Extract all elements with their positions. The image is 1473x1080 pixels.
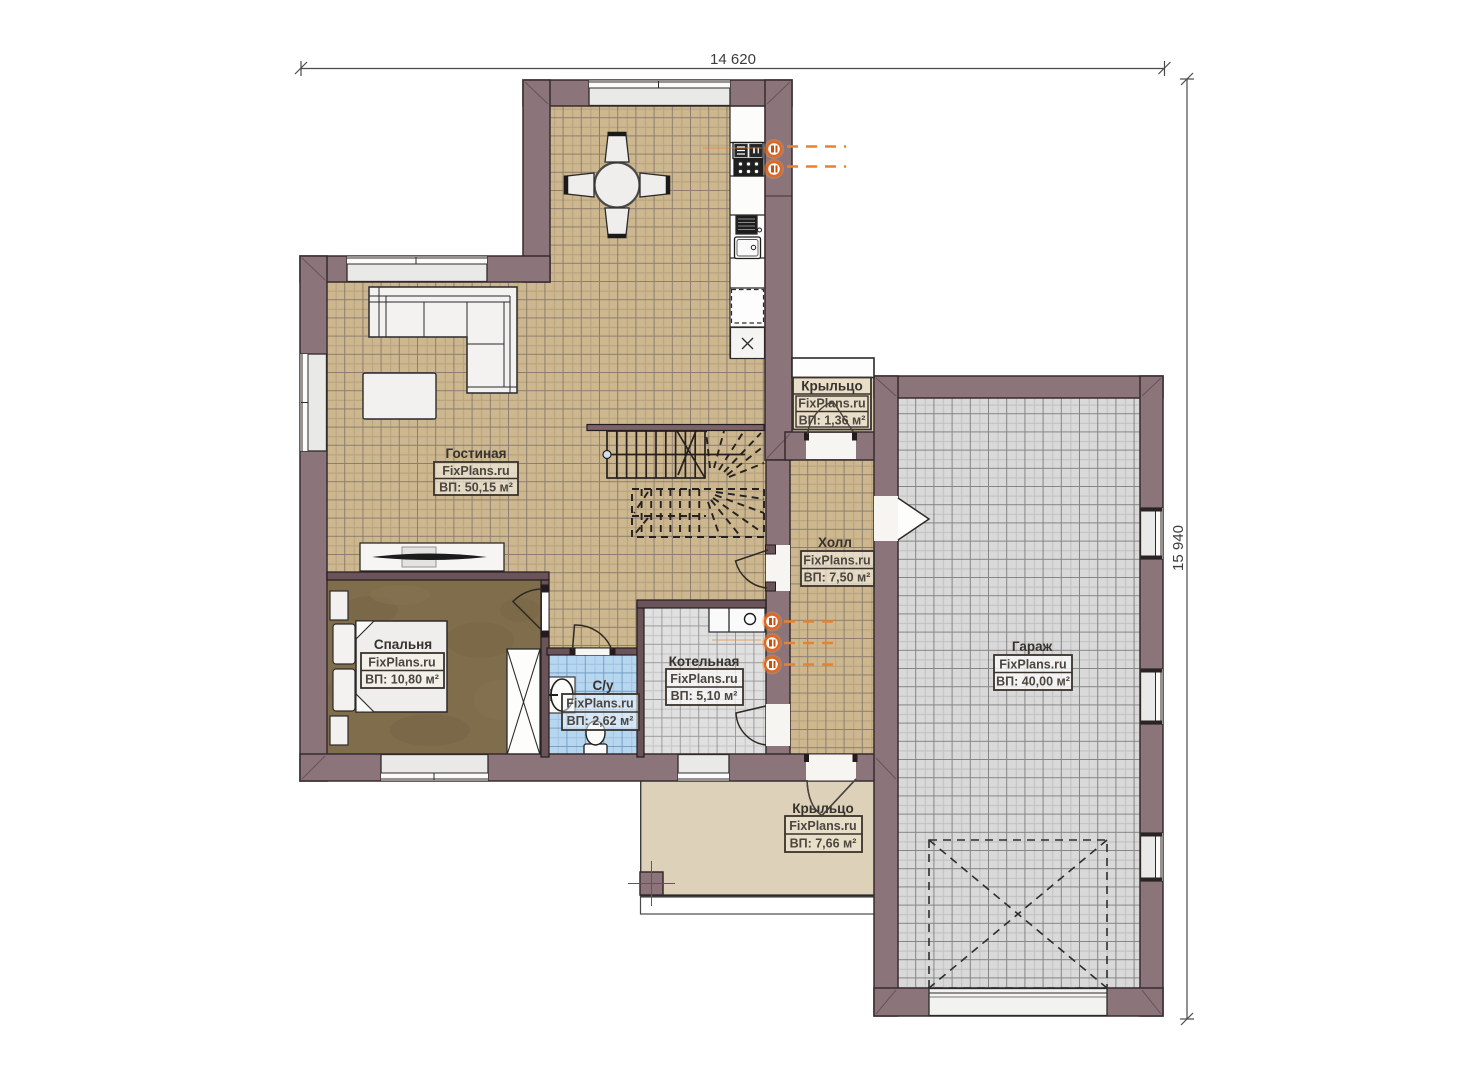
svg-text:FixPlans.ru: FixPlans.ru — [803, 554, 870, 568]
svg-text:FixPlans.ru: FixPlans.ru — [368, 656, 435, 670]
svg-text:FixPlans.ru: FixPlans.ru — [670, 672, 737, 686]
svg-text:ВП: 7,66 м²: ВП: 7,66 м² — [790, 837, 857, 851]
svg-text:Крыльцо: Крыльцо — [801, 379, 862, 394]
svg-text:FixPlans.ru: FixPlans.ru — [999, 658, 1066, 672]
svg-text:Котельная: Котельная — [669, 654, 740, 669]
svg-text:14 620: 14 620 — [710, 51, 756, 68]
svg-text:FixPlans.ru: FixPlans.ru — [789, 819, 856, 833]
svg-text:ВП: 40,00 м²: ВП: 40,00 м² — [996, 675, 1070, 689]
svg-text:Гостиная: Гостиная — [445, 446, 506, 461]
svg-text:С/у: С/у — [592, 678, 614, 693]
svg-text:ВП: 5,10 м²: ВП: 5,10 м² — [671, 689, 738, 703]
svg-text:ВП: 7,50 м²: ВП: 7,50 м² — [804, 571, 871, 585]
svg-text:Гараж: Гараж — [1012, 639, 1053, 654]
svg-text:ВП: 50,15 м²: ВП: 50,15 м² — [439, 481, 513, 495]
svg-text:Спальня: Спальня — [374, 637, 432, 652]
svg-text:FixPlans.ru: FixPlans.ru — [798, 397, 865, 411]
svg-text:ВП: 2,62 м²: ВП: 2,62 м² — [567, 714, 634, 728]
svg-text:ВП: 10,80 м²: ВП: 10,80 м² — [365, 673, 439, 687]
svg-text:FixPlans.ru: FixPlans.ru — [566, 697, 633, 711]
svg-text:ВП: 1,36 м²: ВП: 1,36 м² — [799, 414, 866, 428]
svg-text:15 940: 15 940 — [1170, 525, 1187, 571]
svg-text:Холл: Холл — [818, 535, 852, 550]
svg-text:FixPlans.ru: FixPlans.ru — [442, 464, 509, 478]
